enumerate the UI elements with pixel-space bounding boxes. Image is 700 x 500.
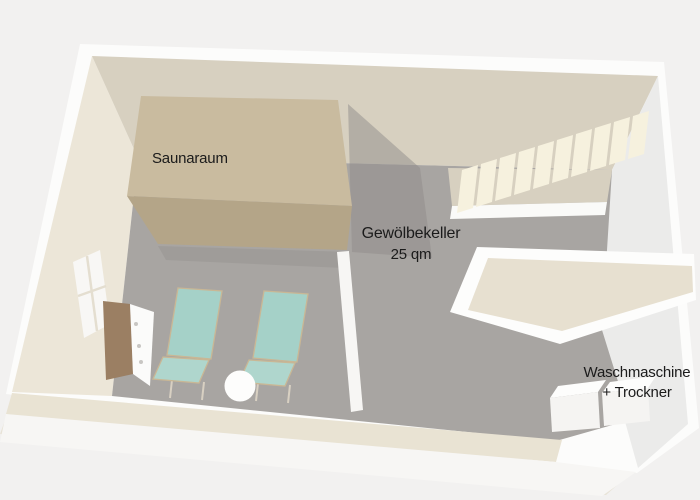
chair-seat: [153, 357, 209, 383]
cabinet-wood-top: [103, 301, 133, 380]
floorplan-svg: Saunaraum Gewölbekeller 25 qm Waschmasch…: [0, 0, 700, 500]
cabinet-knob: [134, 322, 138, 326]
cabinet-knob: [137, 344, 141, 348]
washing-machine-front: [550, 392, 600, 432]
laundry-label: Waschmaschine: [584, 364, 691, 381]
cabinet-knob: [139, 360, 143, 364]
vaulted-cellar-label: Gewölbekeller: [362, 225, 462, 242]
vaulted-cellar-size-label: 25 qm: [391, 246, 432, 263]
washing-machine: [550, 380, 606, 432]
side-table: [225, 371, 256, 402]
laundry-label-line2: + Trockner: [602, 384, 671, 401]
sauna-room-label: Saunaraum: [152, 150, 228, 167]
floorplan-canvas: Saunaraum Gewölbekeller 25 qm Waschmasch…: [0, 0, 700, 500]
cabinet-side: [130, 304, 154, 386]
sideboard-cabinet: [103, 301, 154, 386]
